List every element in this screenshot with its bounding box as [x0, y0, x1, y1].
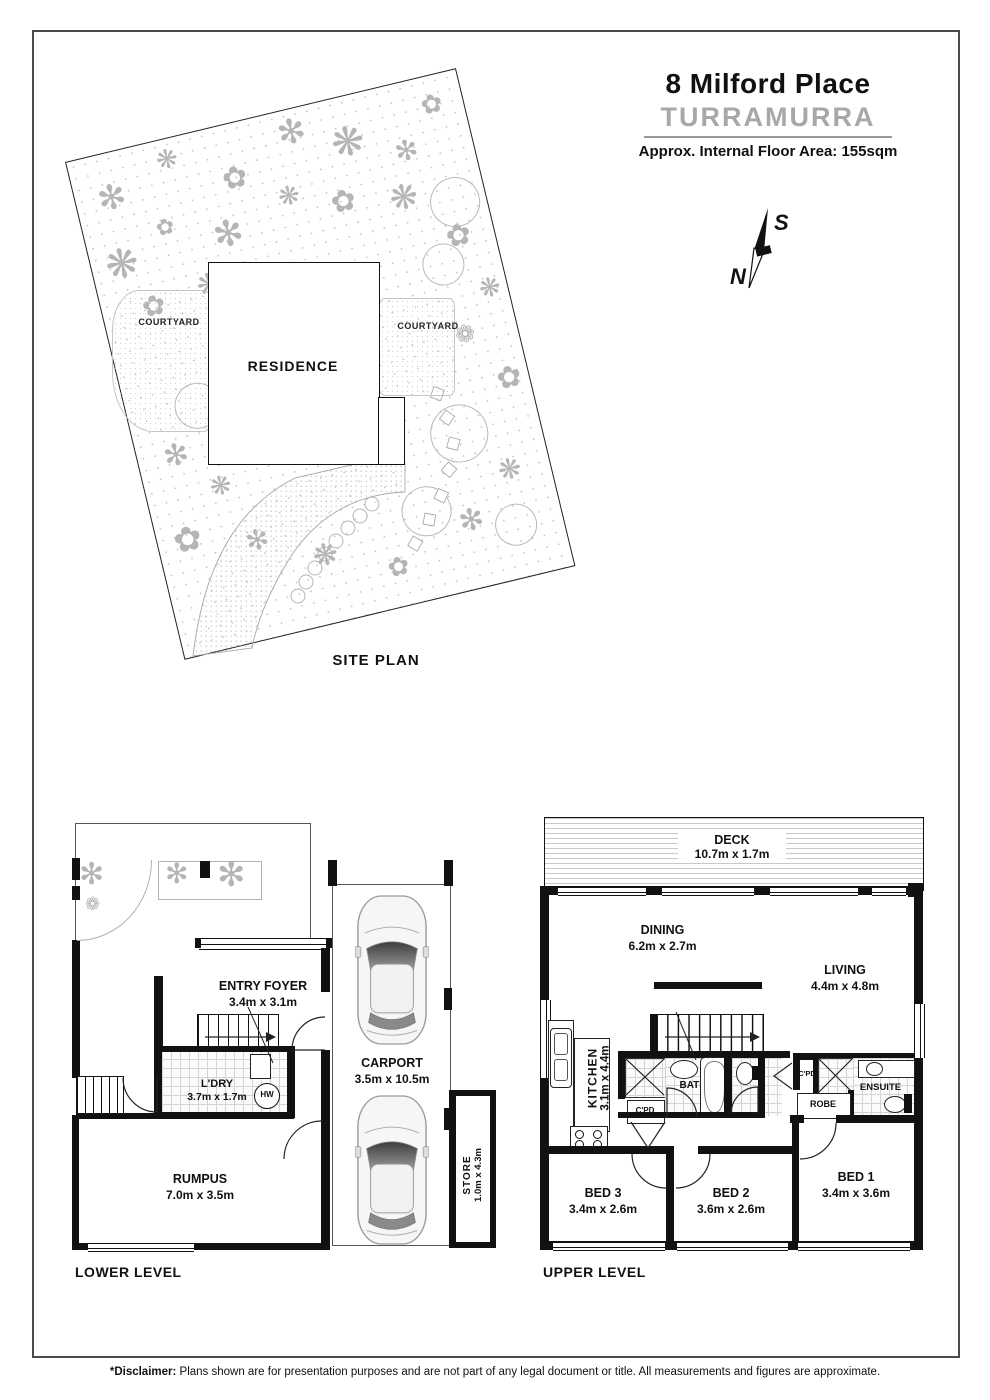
- compass-icon: S N: [726, 200, 806, 296]
- suburb-title: TURRAMURRA: [618, 102, 918, 133]
- upper-plan-linework: [540, 810, 925, 1255]
- stair-break-line: [676, 1012, 696, 1060]
- courtyard-left-label: COURTYARD: [119, 317, 219, 327]
- door-arc: [632, 1154, 666, 1188]
- residence-footprint-extension: [378, 397, 405, 465]
- door-arc: [123, 1078, 157, 1112]
- disclaimer-text: Plans shown are for presentation purpose…: [180, 1366, 881, 1378]
- door-arc: [800, 1123, 836, 1159]
- upper-level-title: UPPER LEVEL: [543, 1264, 646, 1280]
- lower-plan-linework: [70, 815, 500, 1260]
- page-title: 8 Milford Place: [618, 68, 918, 100]
- bifold-door: [631, 1122, 665, 1148]
- stair-arrow-head: [266, 1032, 276, 1042]
- driveway-band: [193, 463, 405, 656]
- bifold-door: [774, 1063, 792, 1089]
- door-arc: [284, 1121, 322, 1159]
- floorplan-page: 8 Milford Place TURRAMURRA Approx. Inter…: [0, 0, 990, 1400]
- courtyard-right-area: [379, 298, 455, 396]
- lower-level-title: LOWER LEVEL: [75, 1264, 182, 1280]
- courtyard-left-area: [112, 290, 210, 432]
- door-arc: [667, 1088, 697, 1118]
- compass-south-label: S: [774, 210, 789, 235]
- door-arc: [292, 1017, 325, 1050]
- residence-label: RESIDENCE: [208, 358, 378, 374]
- compass-north-label: N: [730, 264, 747, 289]
- door-arc: [731, 1087, 758, 1114]
- stepping-stones: [408, 387, 460, 552]
- plant-icon: ❋: [327, 119, 369, 166]
- plant-icon: ✻: [274, 112, 310, 152]
- shower-x: [819, 1059, 852, 1092]
- site-plan-title: SITE PLAN: [276, 652, 476, 669]
- disclaimer-label: *Disclaimer:: [110, 1366, 176, 1378]
- header-divider: [644, 136, 892, 138]
- floor-area-text: Approx. Internal Floor Area: 155sqm: [618, 143, 918, 160]
- shower-x: [626, 1059, 664, 1095]
- disclaimer: *Disclaimer: Plans shown are for present…: [0, 1366, 990, 1378]
- plant-icon: ✿: [418, 90, 445, 120]
- stair-arrow-head: [750, 1032, 760, 1042]
- door-arc: [676, 1154, 710, 1188]
- courtyard-right-label: COURTYARD: [378, 321, 478, 331]
